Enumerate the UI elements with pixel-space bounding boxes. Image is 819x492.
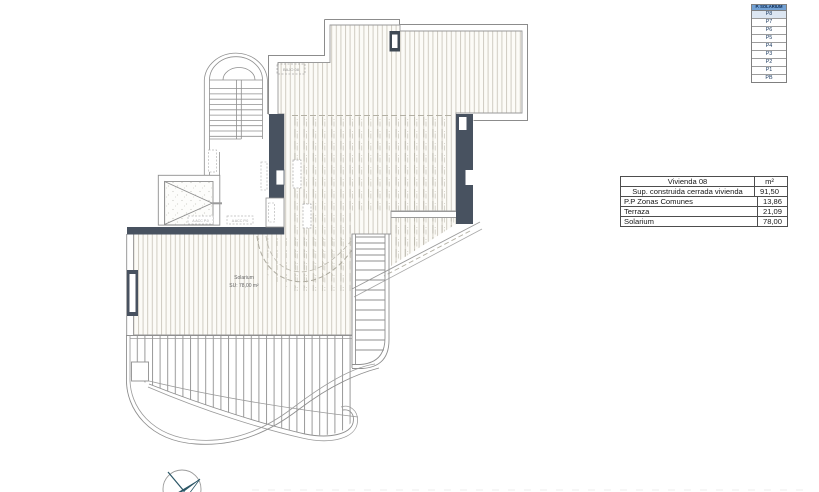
svg-text:Solarium: Solarium [234,275,254,281]
svg-text:A ACC P.0: A ACC P.0 [232,219,249,223]
svg-text:SU: 78,00 m²: SU: 78,00 m² [229,283,259,289]
svg-text:A ACC P.0: A ACC P.0 [192,219,209,223]
svg-text:BAJO 08: BAJO 08 [283,67,300,72]
